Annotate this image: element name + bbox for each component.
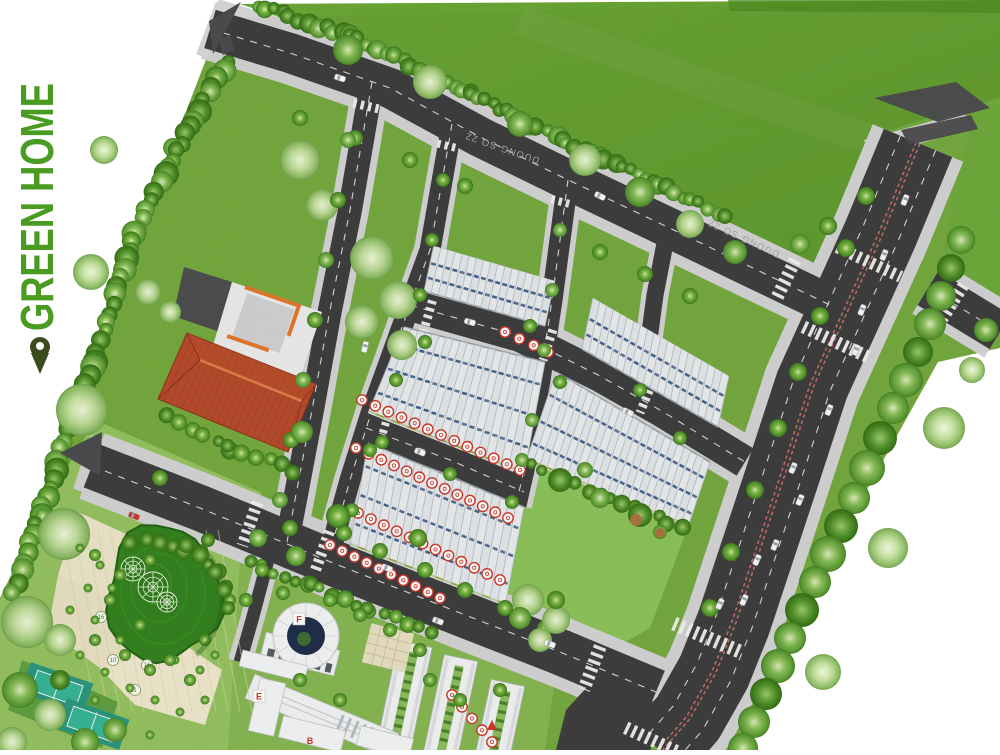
svg-text:GREEN HOME: GREEN HOME	[11, 83, 63, 331]
